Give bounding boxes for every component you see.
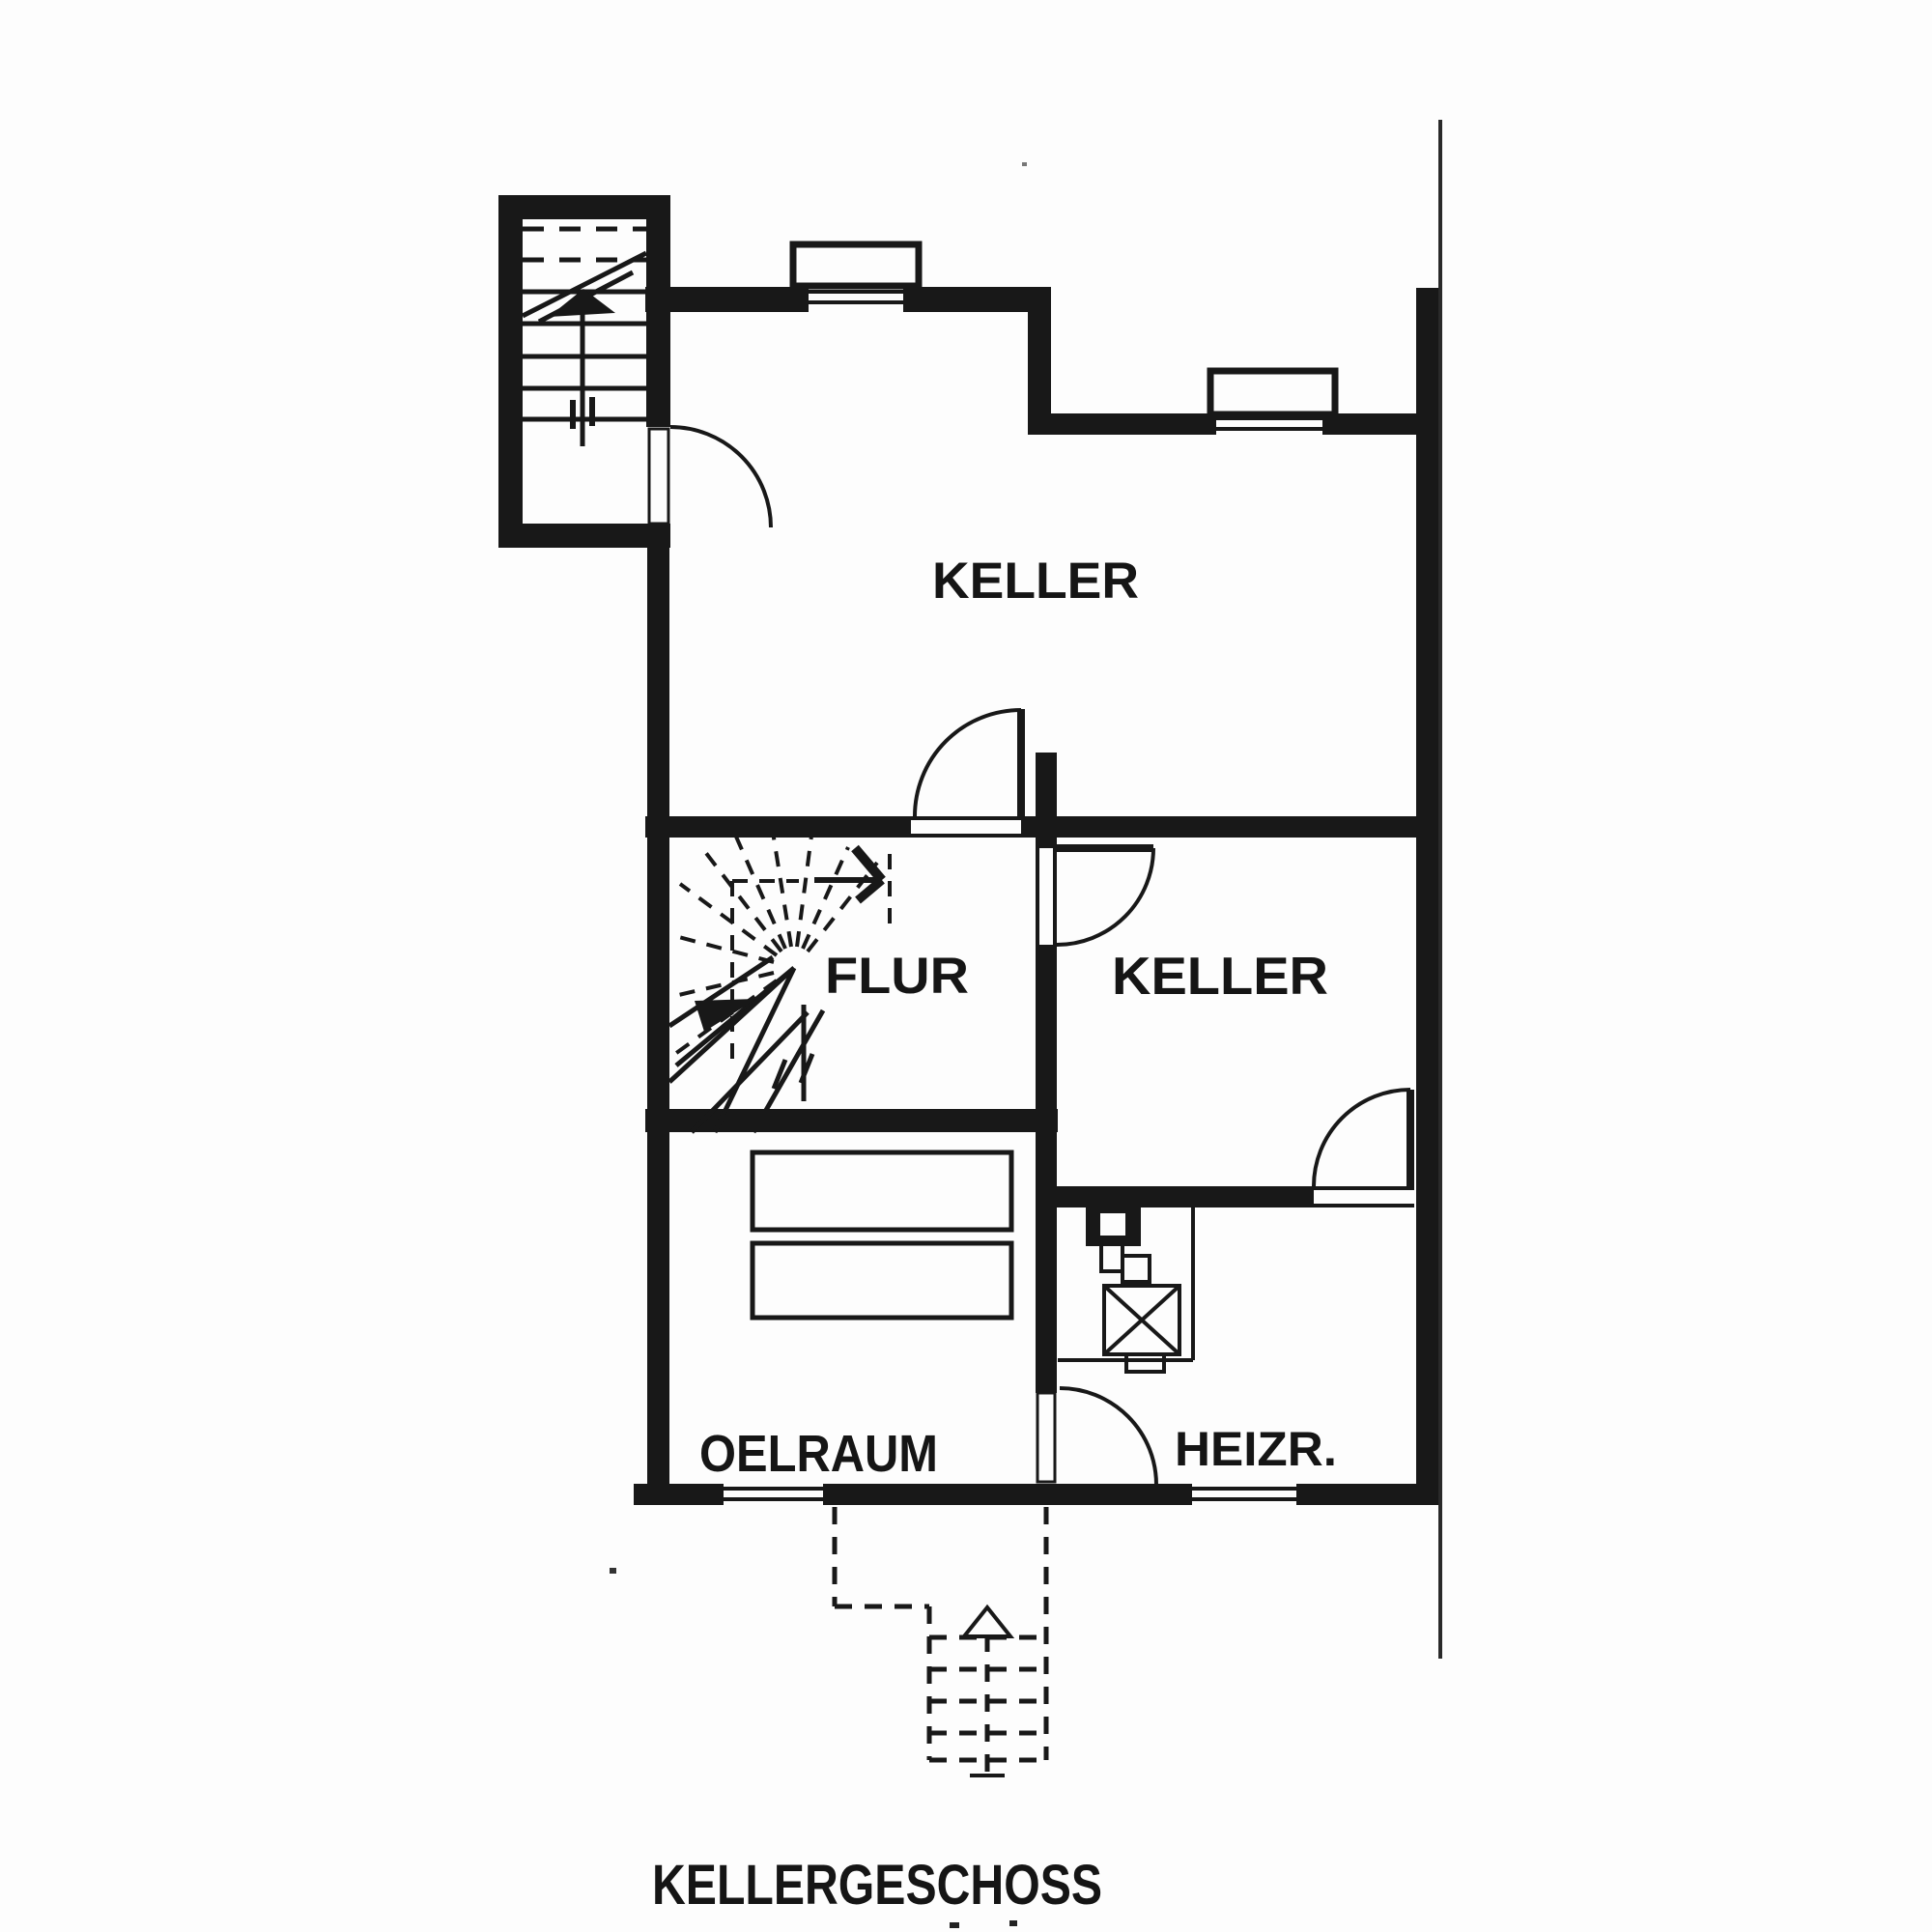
svg-text:KELLER: KELLER [932, 553, 1139, 610]
svg-text:KELLERGESCHOSS: KELLERGESCHOSS [652, 1854, 1102, 1917]
svg-text:OELRAUM: OELRAUM [699, 1425, 938, 1483]
svg-text:HEIZR.: HEIZR. [1175, 1422, 1337, 1476]
svg-text:KELLER: KELLER [1112, 946, 1328, 1006]
svg-text:FLUR: FLUR [825, 948, 969, 1005]
